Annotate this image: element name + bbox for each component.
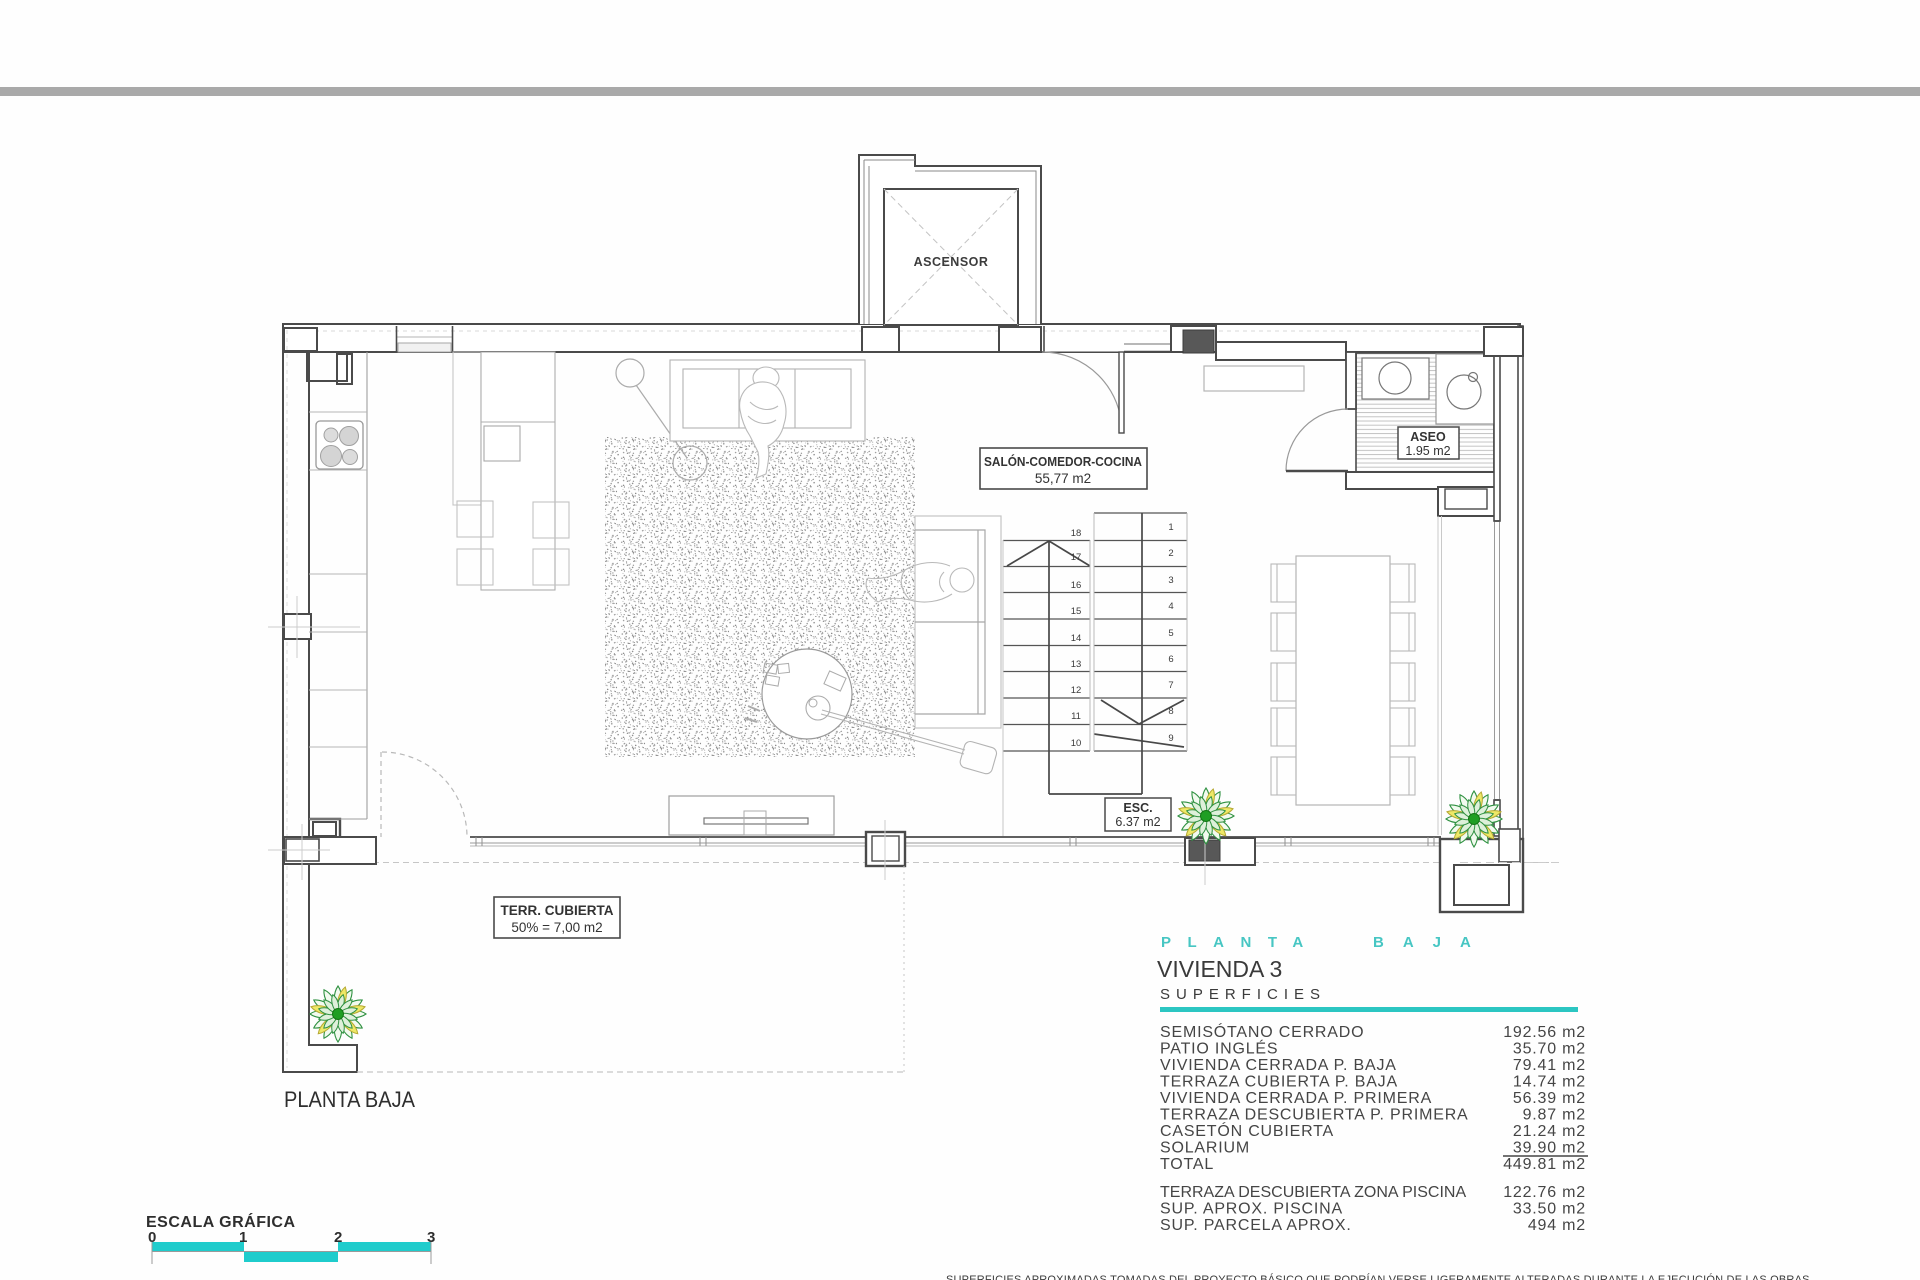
- svg-text:4: 4: [1168, 601, 1173, 612]
- svg-text:35.70 m2: 35.70 m2: [1513, 1041, 1586, 1058]
- svg-text:PATIO INGLÉS: PATIO INGLÉS: [1160, 1039, 1278, 1058]
- svg-text:55,77 m2: 55,77 m2: [1035, 471, 1091, 486]
- svg-text:449.81 m2: 449.81 m2: [1503, 1156, 1586, 1173]
- svg-text:9.87 m2: 9.87 m2: [1523, 1107, 1586, 1124]
- svg-text:12: 12: [1071, 685, 1082, 696]
- svg-text:ESCALA GRÁFICA: ESCALA GRÁFICA: [146, 1212, 296, 1231]
- svg-text:ASCENSOR: ASCENSOR: [914, 255, 989, 269]
- svg-text:VIVIENDA 3: VIVIENDA 3: [1157, 956, 1282, 982]
- svg-text:6: 6: [1168, 654, 1173, 665]
- svg-text:17: 17: [1071, 552, 1082, 563]
- svg-text:ASEO: ASEO: [1410, 430, 1446, 444]
- svg-text:1: 1: [1168, 522, 1173, 533]
- svg-text:TERRAZA CUBIERTA P. BAJA: TERRAZA CUBIERTA P. BAJA: [1160, 1074, 1398, 1091]
- svg-text:14: 14: [1071, 633, 1082, 644]
- svg-text:VIVIENDA CERRADA P. PRIMERA: VIVIENDA CERRADA P. PRIMERA: [1160, 1090, 1432, 1107]
- svg-text:21.24 m2: 21.24 m2: [1513, 1123, 1586, 1140]
- svg-text:TERR. CUBIERTA: TERR. CUBIERTA: [501, 903, 614, 918]
- svg-text:SALÓN-COMEDOR-COCINA: SALÓN-COMEDOR-COCINA: [984, 454, 1143, 469]
- svg-text:18: 18: [1071, 528, 1082, 539]
- svg-text:1.95 m2: 1.95 m2: [1405, 444, 1450, 458]
- svg-text:11: 11: [1071, 711, 1081, 722]
- svg-text:TERRAZA DESCUBIERTA P. PRIMERA: TERRAZA DESCUBIERTA P. PRIMERA: [1160, 1107, 1469, 1124]
- svg-text:SUP. PARCELA APROX.: SUP. PARCELA APROX.: [1160, 1217, 1352, 1234]
- svg-text:VIVIENDA CERRADA P. BAJA: VIVIENDA CERRADA P. BAJA: [1160, 1057, 1397, 1074]
- svg-text:15: 15: [1071, 606, 1082, 617]
- svg-text:3: 3: [1168, 575, 1173, 586]
- svg-text:122.76 m2: 122.76 m2: [1503, 1184, 1586, 1201]
- svg-text:SUPERFICIES APROXIMADAS TOMADA: SUPERFICIES APROXIMADAS TOMADAS DEL PROY…: [946, 1273, 1810, 1280]
- svg-text:13: 13: [1071, 659, 1082, 670]
- svg-text:10: 10: [1071, 738, 1082, 749]
- svg-text:33.50 m2: 33.50 m2: [1513, 1201, 1586, 1218]
- svg-text:6.37 m2: 6.37 m2: [1115, 815, 1160, 829]
- svg-text:SUP. APROX. PISCINA: SUP. APROX. PISCINA: [1160, 1201, 1343, 1218]
- svg-text:ESC.: ESC.: [1123, 801, 1152, 815]
- svg-text:PLANTA: PLANTA: [1161, 934, 1320, 951]
- svg-text:7: 7: [1168, 680, 1173, 691]
- svg-text:BAJA: BAJA: [1373, 934, 1490, 951]
- svg-text:5: 5: [1168, 628, 1173, 639]
- svg-text:79.41 m2: 79.41 m2: [1513, 1057, 1586, 1074]
- svg-text:TERRAZA DESCUBIERTA ZONA PISC: TERRAZA DESCUBIERTA ZONA PISCINA: [1160, 1184, 1466, 1201]
- svg-text:8: 8: [1168, 706, 1173, 717]
- svg-text:14.74 m2: 14.74 m2: [1513, 1074, 1586, 1091]
- svg-text:39.90 m2: 39.90 m2: [1513, 1140, 1586, 1157]
- svg-text:50% = 7,00 m2: 50% = 7,00 m2: [511, 920, 602, 935]
- svg-text:SOLARIUM: SOLARIUM: [1160, 1140, 1250, 1157]
- svg-text:192.56 m2: 192.56 m2: [1503, 1024, 1586, 1041]
- svg-text:TOTAL: TOTAL: [1160, 1156, 1214, 1173]
- svg-text:494 m2: 494 m2: [1528, 1217, 1586, 1234]
- svg-text:9: 9: [1168, 733, 1173, 744]
- svg-text:56.39 m2: 56.39 m2: [1513, 1090, 1586, 1107]
- svg-text:SUPERFICIES: SUPERFICIES: [1160, 986, 1326, 1003]
- svg-text:CASETÓN CUBIERTA: CASETÓN CUBIERTA: [1160, 1121, 1334, 1140]
- svg-text:SEMISÓTANO CERRADO: SEMISÓTANO CERRADO: [1160, 1022, 1364, 1041]
- svg-text:16: 16: [1071, 580, 1082, 591]
- svg-text:2: 2: [1168, 548, 1173, 559]
- svg-text:PLANTA BAJA: PLANTA BAJA: [284, 1087, 415, 1112]
